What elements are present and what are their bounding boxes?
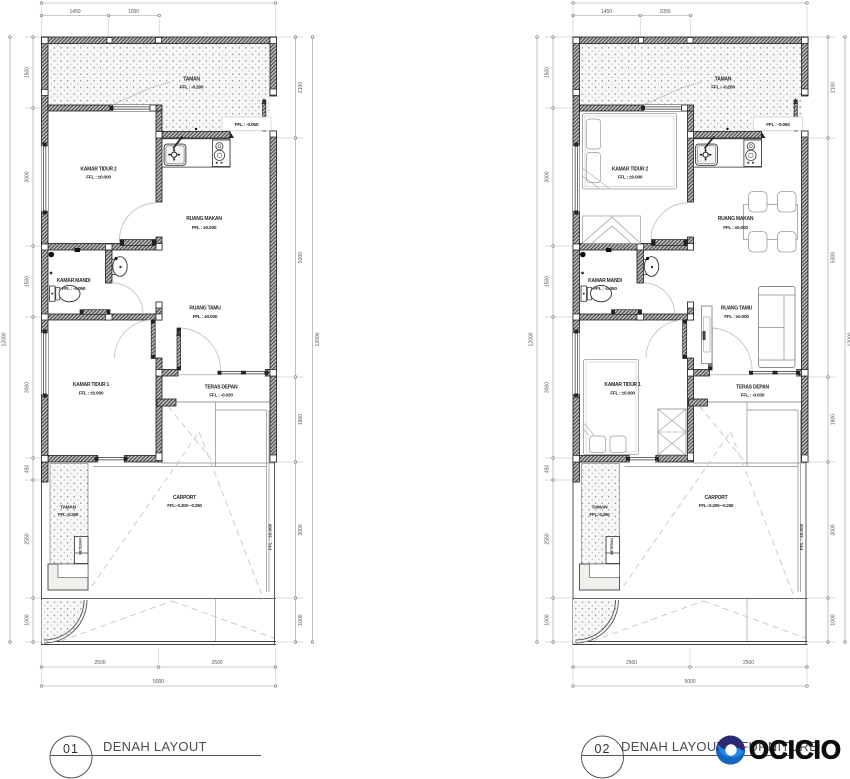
svg-text:FFL : ±0.000: FFL : ±0.000: [268, 523, 273, 550]
svg-text:FFL : ±0.000: FFL : ±0.000: [799, 523, 804, 550]
svg-text:2500: 2500: [743, 660, 754, 666]
svg-text:FFL : ±0.000: FFL : ±0.000: [192, 225, 217, 231]
svg-text:450: 450: [545, 465, 551, 474]
svg-text:1800: 1800: [298, 414, 304, 425]
svg-text:OCICIO: OCICIO: [749, 735, 841, 765]
svg-text:DENAH LAYOUT: DENAH LAYOUT: [103, 739, 207, 754]
svg-text:FFL:-0.200~-0.250: FFL:-0.200~-0.250: [699, 503, 734, 508]
svg-text:TAMAN: TAMAN: [715, 77, 732, 83]
svg-text:01: 01: [63, 742, 79, 756]
svg-text:TAMAN: TAMAN: [60, 505, 76, 511]
svg-text:3000: 3000: [298, 524, 304, 535]
svg-text:RUANG MAKAN: RUANG MAKAN: [186, 216, 222, 222]
svg-text:FFL : -0.030: FFL : -0.030: [741, 393, 765, 399]
svg-text:1000: 1000: [831, 614, 837, 625]
svg-text:1050: 1050: [128, 9, 139, 15]
svg-text:KAMAR TIDUR 2: KAMAR TIDUR 2: [612, 167, 649, 173]
svg-text:1500: 1500: [25, 276, 31, 287]
svg-text:RUANG TAMU: RUANG TAMU: [189, 306, 221, 312]
svg-text:3000: 3000: [25, 171, 31, 182]
svg-text:FFL : ±0.000: FFL : ±0.000: [86, 175, 111, 181]
svg-text:TAMAN: TAMAN: [592, 505, 608, 511]
svg-text:2550: 2550: [25, 533, 31, 544]
svg-text:3000: 3000: [545, 171, 551, 182]
svg-text:2100: 2100: [831, 82, 837, 93]
svg-text:FFL : -0.200: FFL : -0.200: [711, 85, 735, 91]
svg-text:02: 02: [595, 742, 611, 756]
svg-text:KAMAR MANDI: KAMAR MANDI: [588, 278, 622, 284]
svg-text:FFL : ±0.000: FFL : ±0.000: [79, 391, 104, 397]
svg-text:FFL : ±0.000: FFL : ±0.000: [610, 391, 635, 397]
svg-text:FFL : -0.200: FFL : -0.200: [180, 85, 204, 91]
svg-text:CARPORT: CARPORT: [705, 495, 728, 501]
svg-text:1450: 1450: [69, 9, 80, 15]
svg-text:TAMAN: TAMAN: [183, 77, 200, 83]
svg-text:TERAS DEPAN: TERAS DEPAN: [736, 385, 769, 391]
svg-text:5000: 5000: [153, 679, 164, 685]
svg-text:METERAN: METERAN: [79, 538, 83, 555]
svg-text:5300: 5300: [298, 252, 304, 263]
svg-text:1500: 1500: [545, 67, 551, 78]
svg-text:3000: 3000: [545, 382, 551, 393]
svg-text:1500: 1500: [25, 67, 31, 78]
svg-text:1000: 1000: [25, 614, 31, 625]
svg-text:FFL : ±0.000: FFL : ±0.000: [618, 175, 643, 181]
svg-text:KAMAR TIDUR 1: KAMAR TIDUR 1: [604, 382, 641, 388]
svg-text:FFL:-0.200~-0.250: FFL:-0.200~-0.250: [167, 503, 202, 508]
svg-text:2500: 2500: [211, 660, 222, 666]
svg-text:KAMAR TIDUR 2: KAMAR TIDUR 2: [80, 167, 117, 173]
svg-text:FFL : -0.050: FFL : -0.050: [235, 122, 259, 128]
svg-text:12000: 12000: [529, 332, 535, 346]
svg-text:KAMAR MANDI: KAMAR MANDI: [57, 278, 91, 284]
svg-text:1500: 1500: [545, 276, 551, 287]
svg-text:FFL:-0.250: FFL:-0.250: [58, 512, 79, 517]
svg-text:FFL : ±0.000: FFL : ±0.000: [723, 225, 748, 231]
svg-text:12000: 12000: [2, 332, 8, 346]
svg-text:FFL:-0.250: FFL:-0.250: [589, 512, 610, 517]
svg-text:5000: 5000: [684, 679, 695, 685]
svg-text:FFL : -0.050: FFL : -0.050: [593, 286, 617, 292]
svg-text:1800: 1800: [831, 414, 837, 425]
svg-text:FFL : ±0.000: FFL : ±0.000: [193, 314, 218, 320]
svg-text:CARPORT: CARPORT: [173, 495, 196, 501]
svg-text:1000: 1000: [298, 614, 304, 625]
svg-text:FFL : -0.030: FFL : -0.030: [209, 393, 233, 399]
svg-text:2500: 2500: [626, 660, 637, 666]
svg-text:12000: 12000: [315, 332, 321, 346]
svg-text:3000: 3000: [831, 524, 837, 535]
svg-text:FFL : -0.050: FFL : -0.050: [62, 286, 86, 292]
svg-text:2550: 2550: [545, 533, 551, 544]
svg-text:FFL : ±0.000: FFL : ±0.000: [724, 314, 749, 320]
svg-text:TERAS DEPAN: TERAS DEPAN: [205, 385, 238, 391]
svg-text:FFL : -0.050: FFL : -0.050: [766, 122, 790, 128]
svg-text:RUANG TAMU: RUANG TAMU: [721, 306, 753, 312]
svg-text:METERAN: METERAN: [610, 538, 614, 555]
svg-text:2100: 2100: [298, 82, 304, 93]
svg-text:450: 450: [25, 465, 31, 474]
svg-text:1050: 1050: [659, 9, 670, 15]
svg-text:2500: 2500: [94, 660, 105, 666]
svg-text:5300: 5300: [831, 252, 837, 263]
svg-text:RUANG MAKAN: RUANG MAKAN: [718, 216, 754, 222]
svg-text:1000: 1000: [545, 614, 551, 625]
svg-text:3000: 3000: [25, 382, 31, 393]
svg-text:KAMAR TIDUR 1: KAMAR TIDUR 1: [73, 382, 110, 388]
svg-text:1450: 1450: [601, 9, 612, 15]
